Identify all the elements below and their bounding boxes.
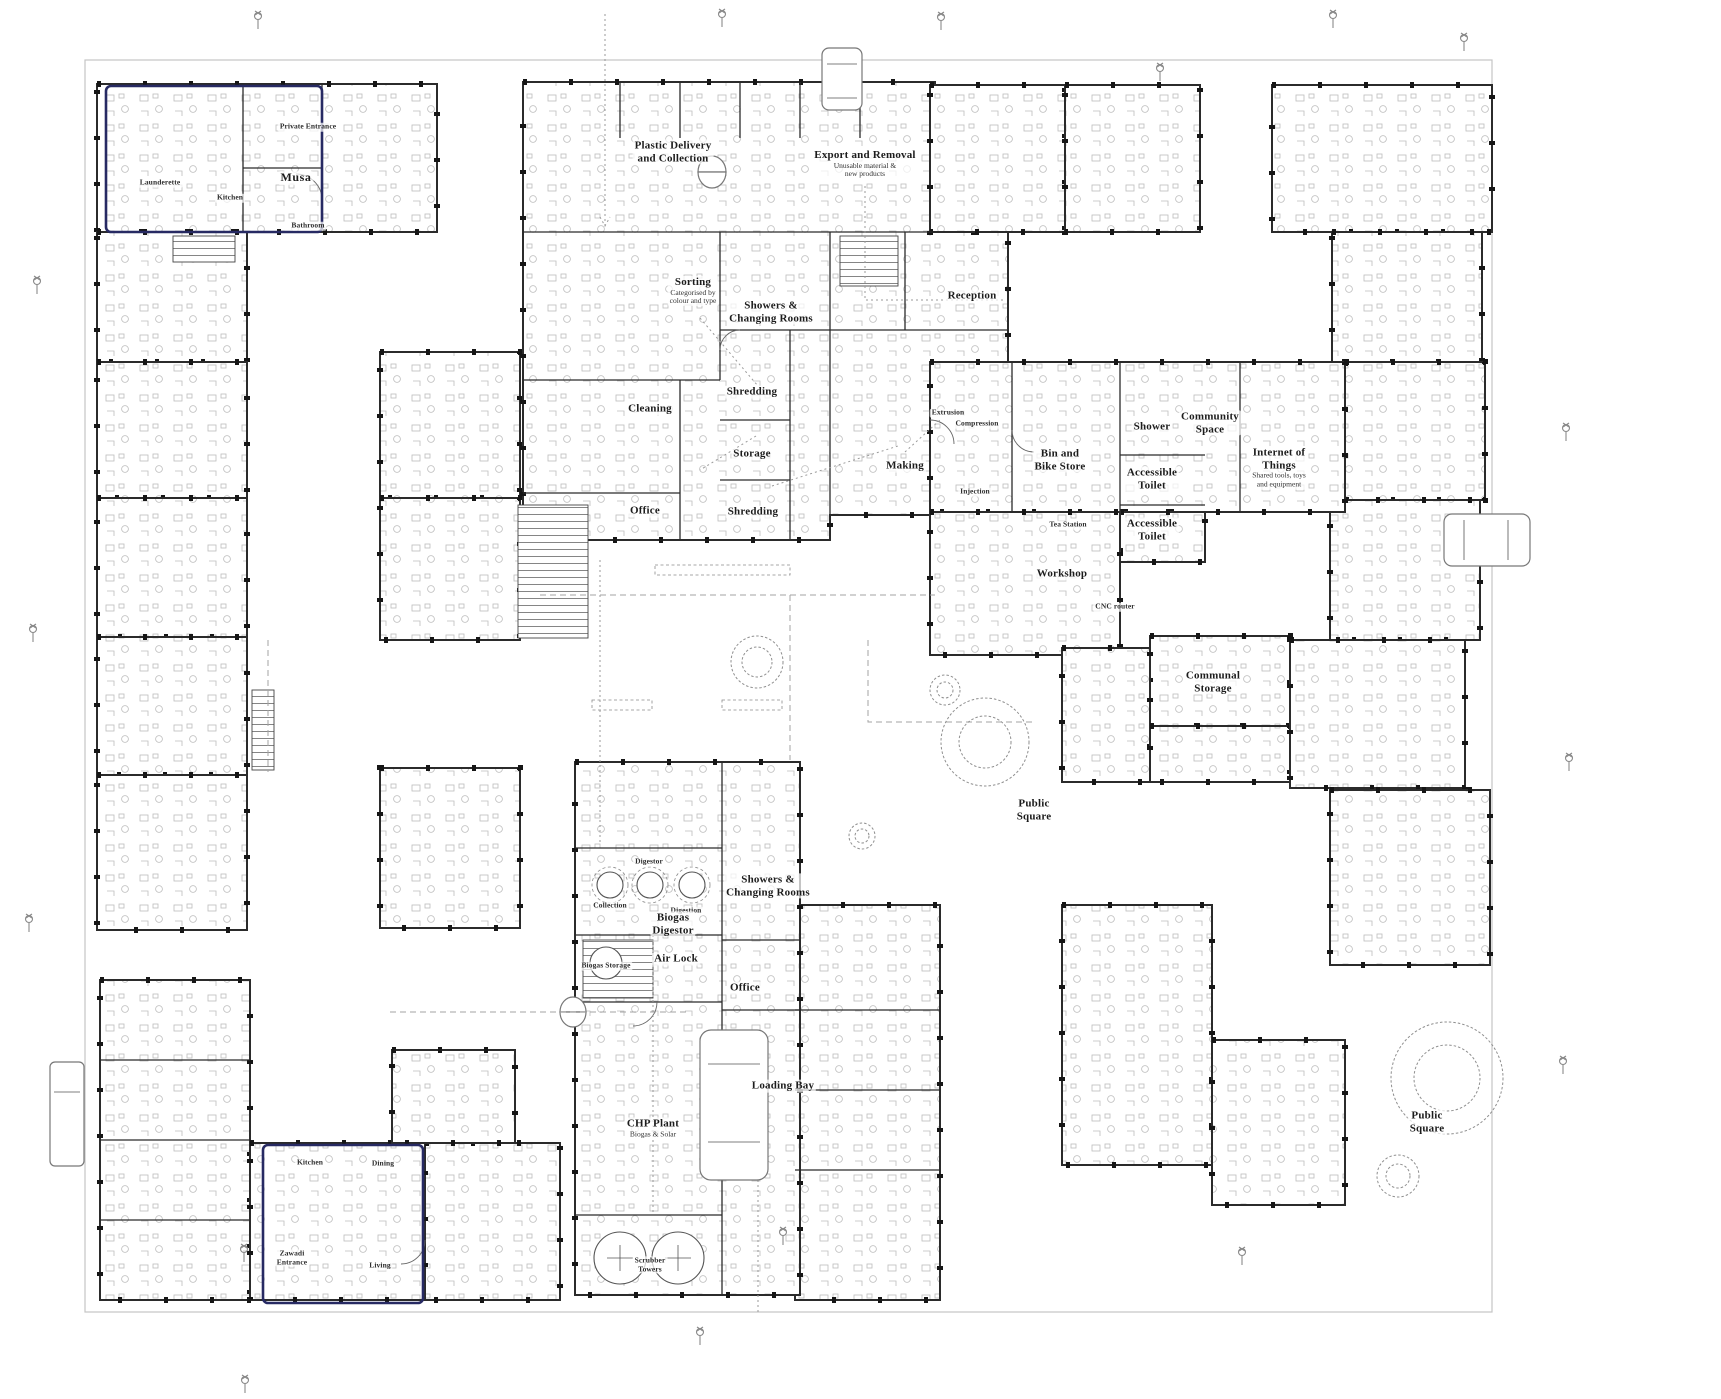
van-icon xyxy=(822,48,862,110)
biogas-storage-tank-icon xyxy=(590,947,622,979)
tree-icon xyxy=(1391,1022,1503,1134)
buildings-layer xyxy=(97,82,1492,1300)
car-icon xyxy=(1444,514,1530,566)
tree-icon xyxy=(1377,1155,1419,1197)
digester-tank-icon xyxy=(597,872,623,898)
floor-plan: Plastic Deliveryand CollectionExport and… xyxy=(0,0,1721,1399)
tree-icon xyxy=(941,698,1029,786)
delivery-van-icon xyxy=(700,1030,768,1180)
tree-icon xyxy=(930,675,960,705)
tree-icon xyxy=(849,823,875,849)
truck-icon xyxy=(50,1062,84,1166)
tree-icon xyxy=(731,636,783,688)
plan-drawing xyxy=(0,0,1721,1399)
digester-tank-icon xyxy=(637,872,663,898)
digester-tank-icon xyxy=(679,872,705,898)
